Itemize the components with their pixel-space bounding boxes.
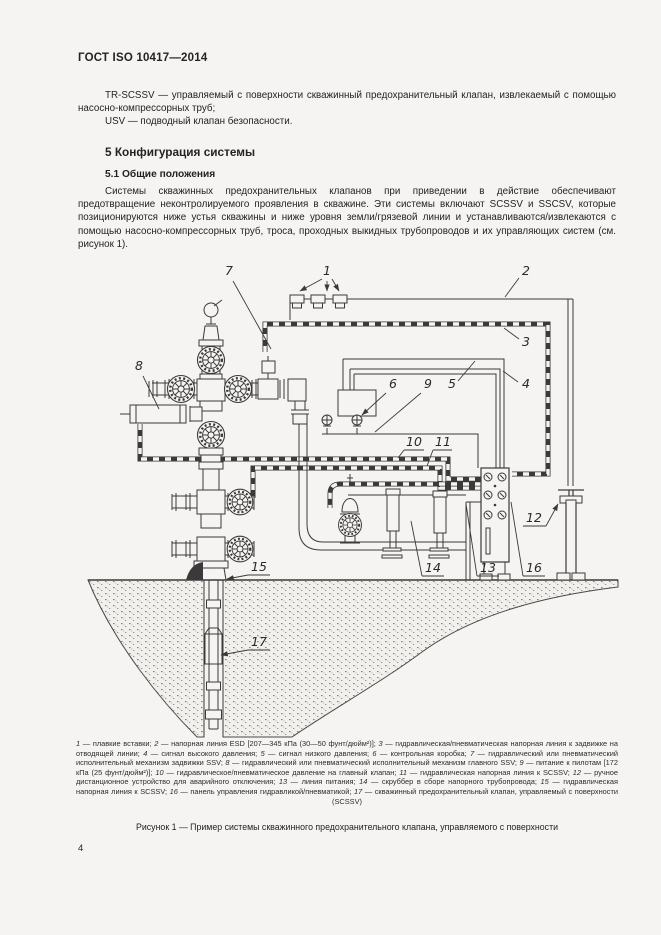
- ground-hatch: [88, 580, 618, 737]
- well-bore: [204, 580, 223, 737]
- callout-13: 13: [480, 560, 496, 575]
- callout-11: 11: [435, 434, 451, 449]
- fusible-plug: [311, 295, 325, 308]
- control-box: [322, 390, 376, 434]
- scssv-valve: [205, 628, 222, 664]
- fusible-plug: [290, 295, 304, 308]
- manual-esd-station: [557, 490, 585, 580]
- master-ssv-actuator: [120, 405, 202, 423]
- pressure-gauge: [204, 300, 222, 324]
- document-page: ГОСТ ISO 10417—2014 TR-SCSSV — управляем…: [0, 0, 661, 935]
- callout-7: 7: [225, 263, 233, 278]
- callout-5: 5: [448, 376, 456, 391]
- scrubber-assembly: [339, 474, 449, 558]
- callout-2: 2: [522, 263, 530, 278]
- callout-15: 15: [251, 559, 267, 574]
- body-paragraph: Системы скважинных предохранительных кла…: [78, 185, 616, 251]
- callout-12: 12: [526, 510, 542, 525]
- callout-17: 17: [251, 634, 267, 649]
- fusible-plug: [333, 295, 347, 308]
- ssv-wing-valve-actuator: [258, 356, 278, 399]
- scrubber-cylinder: [382, 489, 402, 558]
- callout-6: 6: [389, 376, 397, 391]
- running-header: ГОСТ ISO 10417—2014: [78, 52, 207, 64]
- callout-16: 16: [526, 560, 542, 575]
- figure-legend: 1 — плавкие вставки; 2 — напорная линия …: [76, 739, 618, 806]
- callout-3: 3: [522, 334, 530, 349]
- section-title: 5 Конфигурация системы: [105, 145, 255, 159]
- intro-line-usv: USV — подводный клапан безопасности.: [78, 115, 616, 128]
- callout-10: 10: [406, 434, 422, 449]
- callout-4: 4: [522, 376, 530, 391]
- intro-line-tr-scssv: TR-SCSSV — управляемый с поверхности скв…: [78, 89, 616, 115]
- subsection-title: 5.1 Общие положения: [105, 169, 215, 180]
- callout-1: 1: [323, 263, 331, 278]
- scrubber-cylinder: [429, 491, 449, 558]
- wellhead-tree: [120, 300, 309, 580]
- figure-caption: Рисунок 1 — Пример системы скважинного п…: [78, 822, 616, 832]
- callout-8: 8: [135, 358, 143, 373]
- callout-14: 14: [425, 560, 441, 575]
- pilot-valve: [352, 415, 362, 434]
- page-number: 4: [78, 843, 83, 854]
- pilot-valve: [322, 415, 332, 434]
- figure-1-diagram: 1 2 3 4 5 6 7 8 9 10 11 12 13 14 15 16 1…: [0, 262, 661, 740]
- callout-9: 9: [424, 376, 432, 391]
- intro-paragraphs: TR-SCSSV — управляемый с поверхности скв…: [78, 89, 616, 129]
- supply-line: [466, 502, 481, 580]
